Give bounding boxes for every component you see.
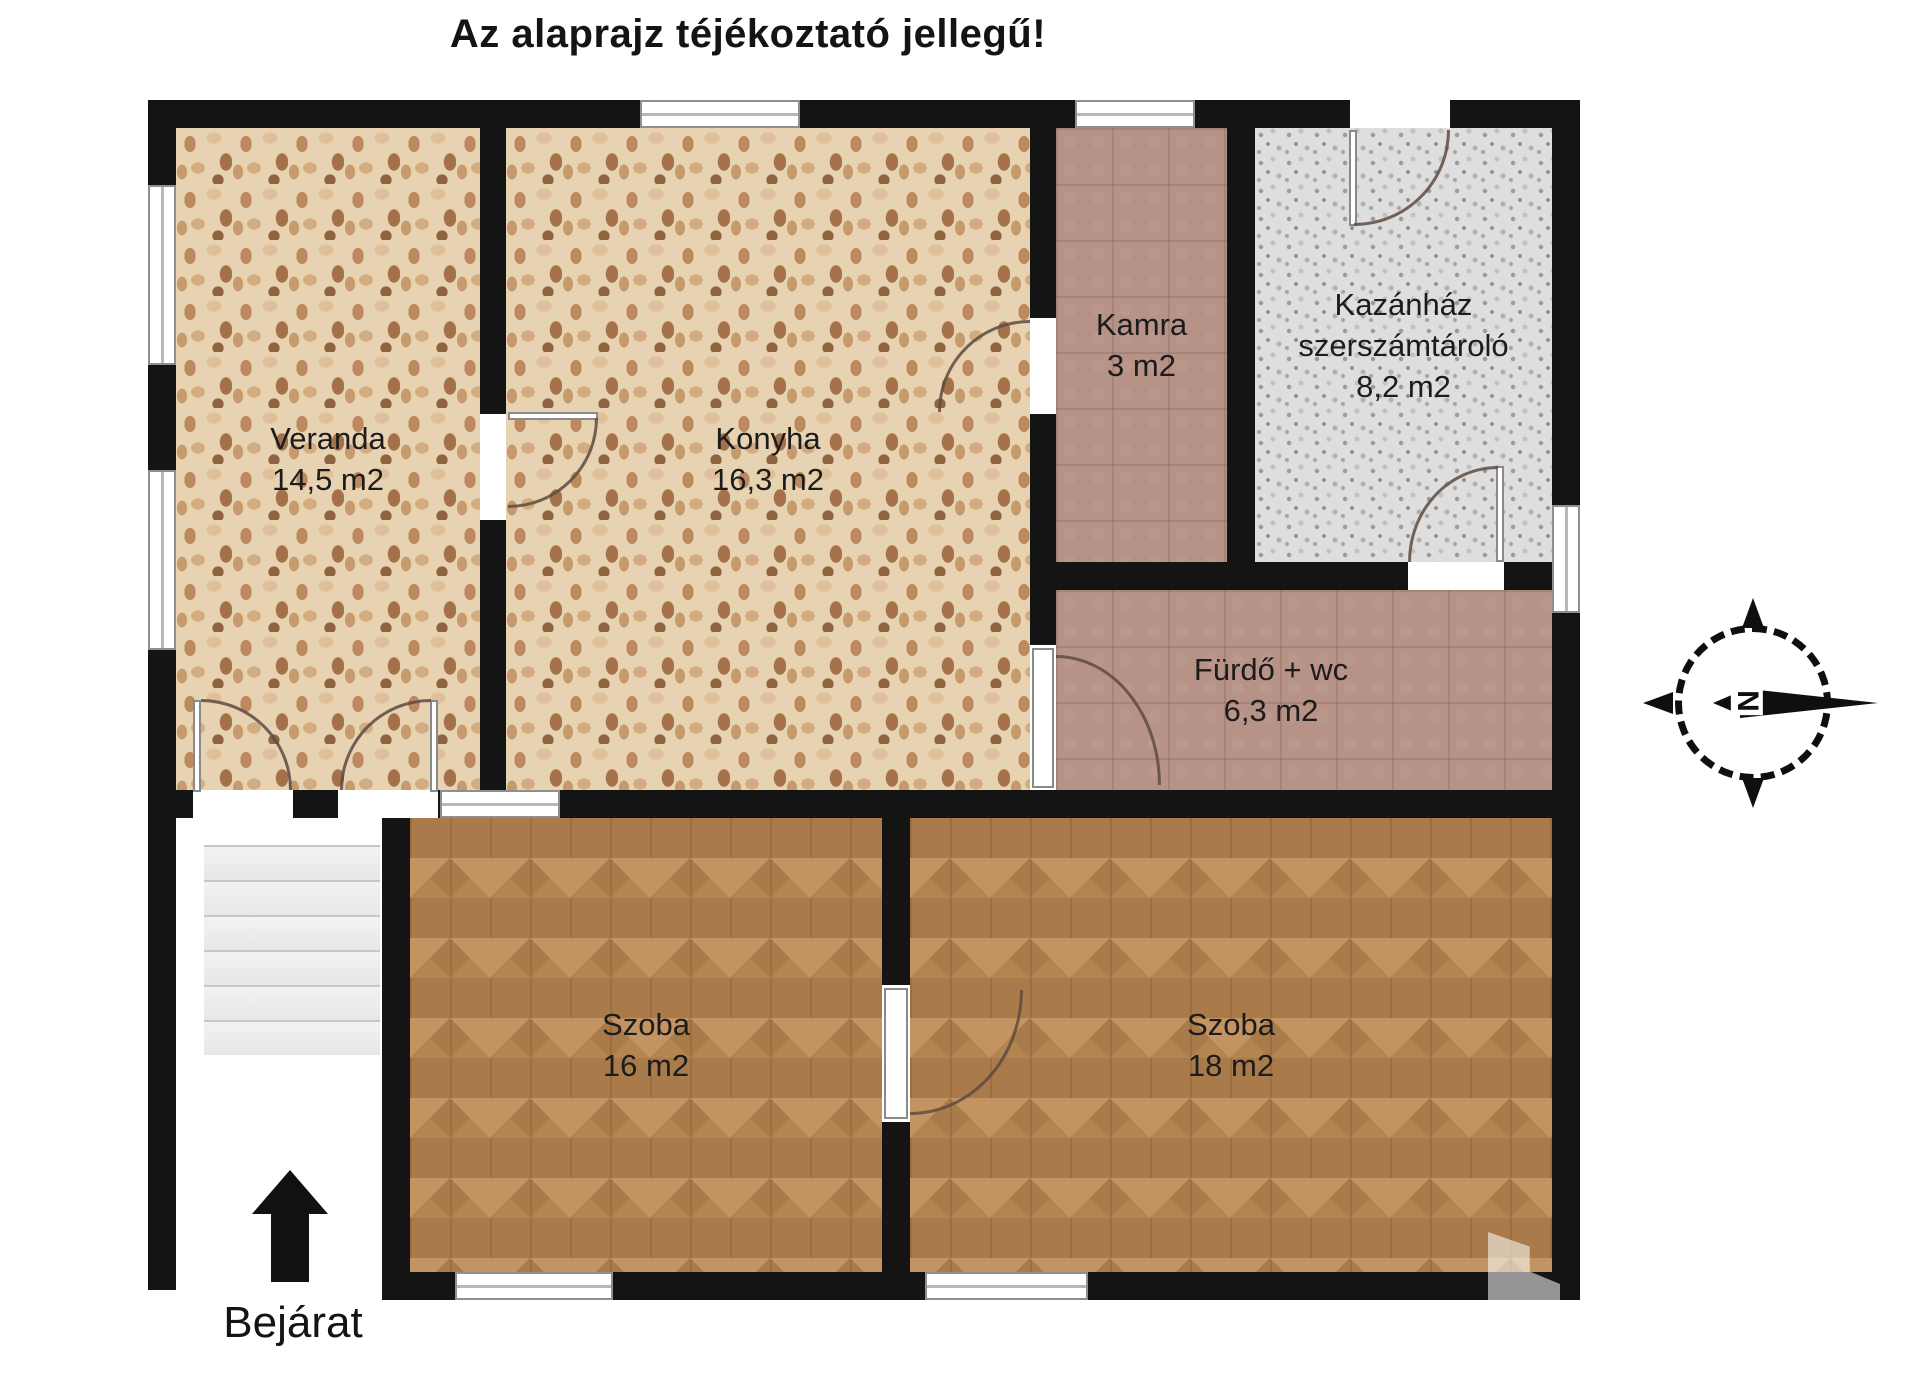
room-veranda [176, 128, 480, 790]
window-right [1552, 505, 1580, 613]
entrance-label: Bejárat [178, 1298, 408, 1348]
arrow-shaft [271, 1214, 309, 1282]
entrance-stairs [204, 845, 380, 1055]
arrow-head [252, 1170, 328, 1214]
door-leaf [884, 988, 908, 1119]
wall-kamra-kazanhaz [1227, 128, 1255, 562]
door-gap [193, 790, 293, 818]
entrance-arrow-icon [252, 1170, 328, 1282]
wall-right [1552, 100, 1580, 1300]
window-veranda-lower [148, 470, 176, 650]
compass-tick-top [1742, 598, 1764, 628]
window-veranda-upper [148, 185, 176, 365]
compass-tick-bottom [1742, 778, 1764, 808]
window-middle [440, 790, 560, 818]
door-gap [480, 414, 506, 520]
door-gap [1030, 318, 1056, 414]
window-szoba-16 [455, 1272, 613, 1300]
window-konyha [640, 100, 800, 128]
wall-entry-szoba [382, 790, 410, 1300]
compass-icon: N [1645, 600, 1885, 815]
room-kamra [1056, 128, 1227, 562]
compass-tick-left [1643, 692, 1673, 714]
stair-step [204, 950, 380, 985]
door-leaf [430, 700, 438, 792]
stair-step [204, 845, 380, 880]
plan-title: Az alaprajz téjékoztató jellegű! [148, 12, 1348, 57]
stair-step [204, 880, 380, 915]
door-gap [1350, 100, 1450, 128]
door-leaf [1032, 648, 1054, 788]
door-gap [1408, 562, 1504, 590]
stair-step [204, 1020, 380, 1055]
window-kamra [1075, 100, 1195, 128]
stair-step [204, 915, 380, 950]
door-leaf [193, 700, 201, 792]
stair-step [204, 985, 380, 1020]
window-szoba-18 [925, 1272, 1088, 1300]
room-szoba-16 [410, 818, 882, 1272]
door-gap [338, 790, 438, 818]
compass-north-letter: N [1731, 687, 1763, 715]
